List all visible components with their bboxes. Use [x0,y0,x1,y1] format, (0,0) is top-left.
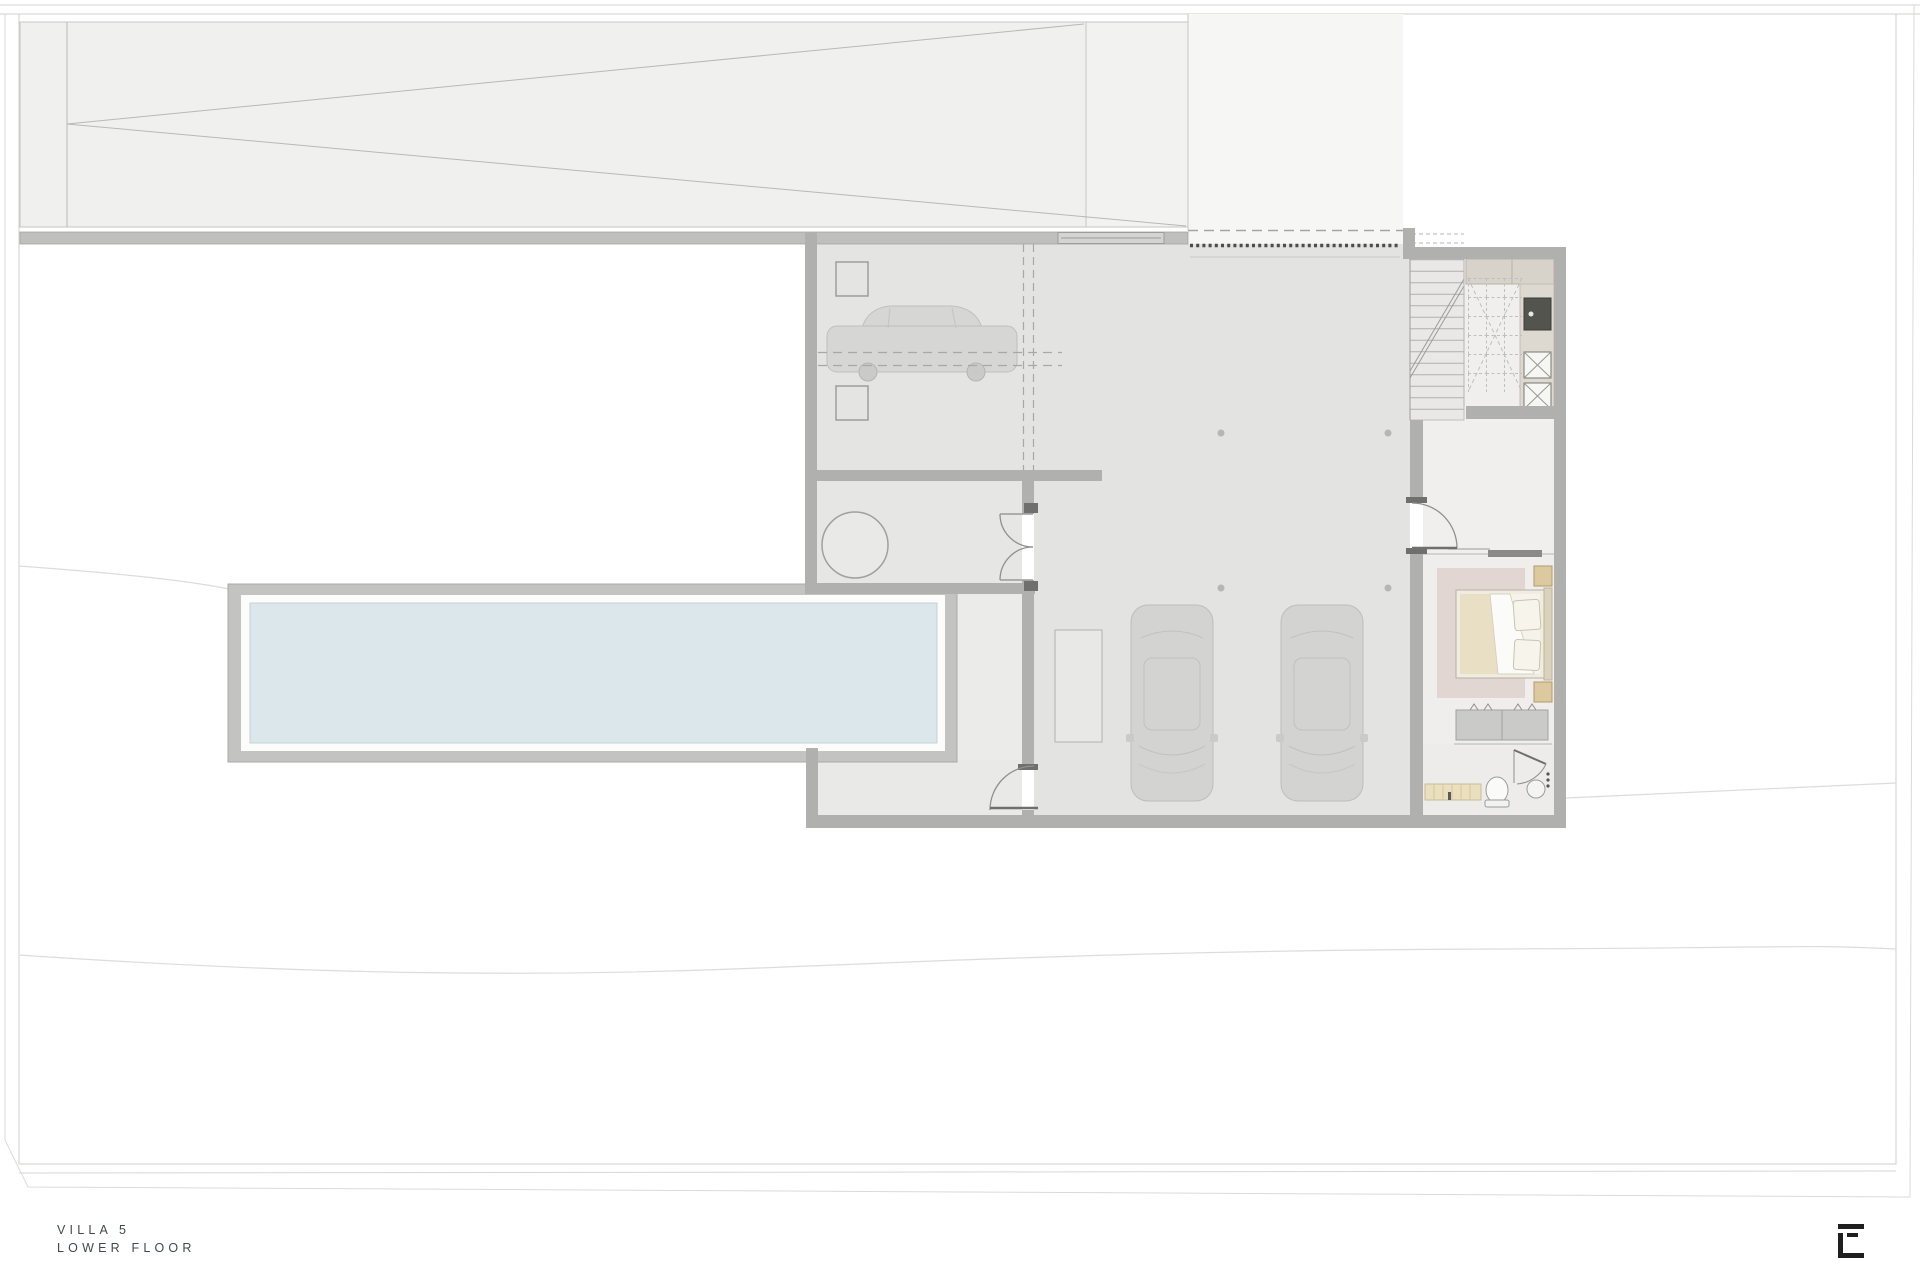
logo-bar [1838,1224,1864,1229]
staircase [1410,234,1464,420]
toilet [1485,777,1509,807]
title-block: VILLA 5 LOWER FLOOR [57,1221,196,1257]
nightstand [1534,566,1552,586]
washer [1524,352,1551,378]
round-table-room [822,512,888,578]
pillow [1513,639,1541,670]
bench [1425,784,1481,800]
drain-grate [1058,233,1164,244]
car-top-view [1126,605,1218,801]
logo-bar [1847,1233,1858,1237]
wall-hooks [1546,772,1549,787]
floor-plan [0,0,1920,1269]
retaining-wall [20,232,1188,244]
lap-pool [228,584,957,762]
laundry-utility-room [1466,259,1554,412]
headboard [1544,588,1552,680]
car-top-view [1276,605,1368,801]
driveway-ramp [20,22,1188,227]
nightstand [1534,682,1552,702]
round-table [822,512,888,578]
workbench [1055,630,1102,742]
basin [1527,780,1545,798]
utility-sink [1524,298,1551,330]
double-vanity [1454,704,1552,744]
pillow [1513,599,1541,631]
dryer [1524,383,1551,409]
logo-bar [1838,1253,1864,1258]
sliding-door-leaf [1488,550,1542,557]
entry-courtyard [1188,14,1403,245]
sheet-subtitle: LOWER FLOOR [57,1239,196,1257]
pool-walkway-floor [957,594,1022,762]
drawing-sheet: VILLA 5 LOWER FLOOR [0,0,1920,1269]
logo-e-icon [1838,1224,1864,1258]
sheet-title: VILLA 5 [57,1221,196,1239]
pool-water [250,603,937,743]
